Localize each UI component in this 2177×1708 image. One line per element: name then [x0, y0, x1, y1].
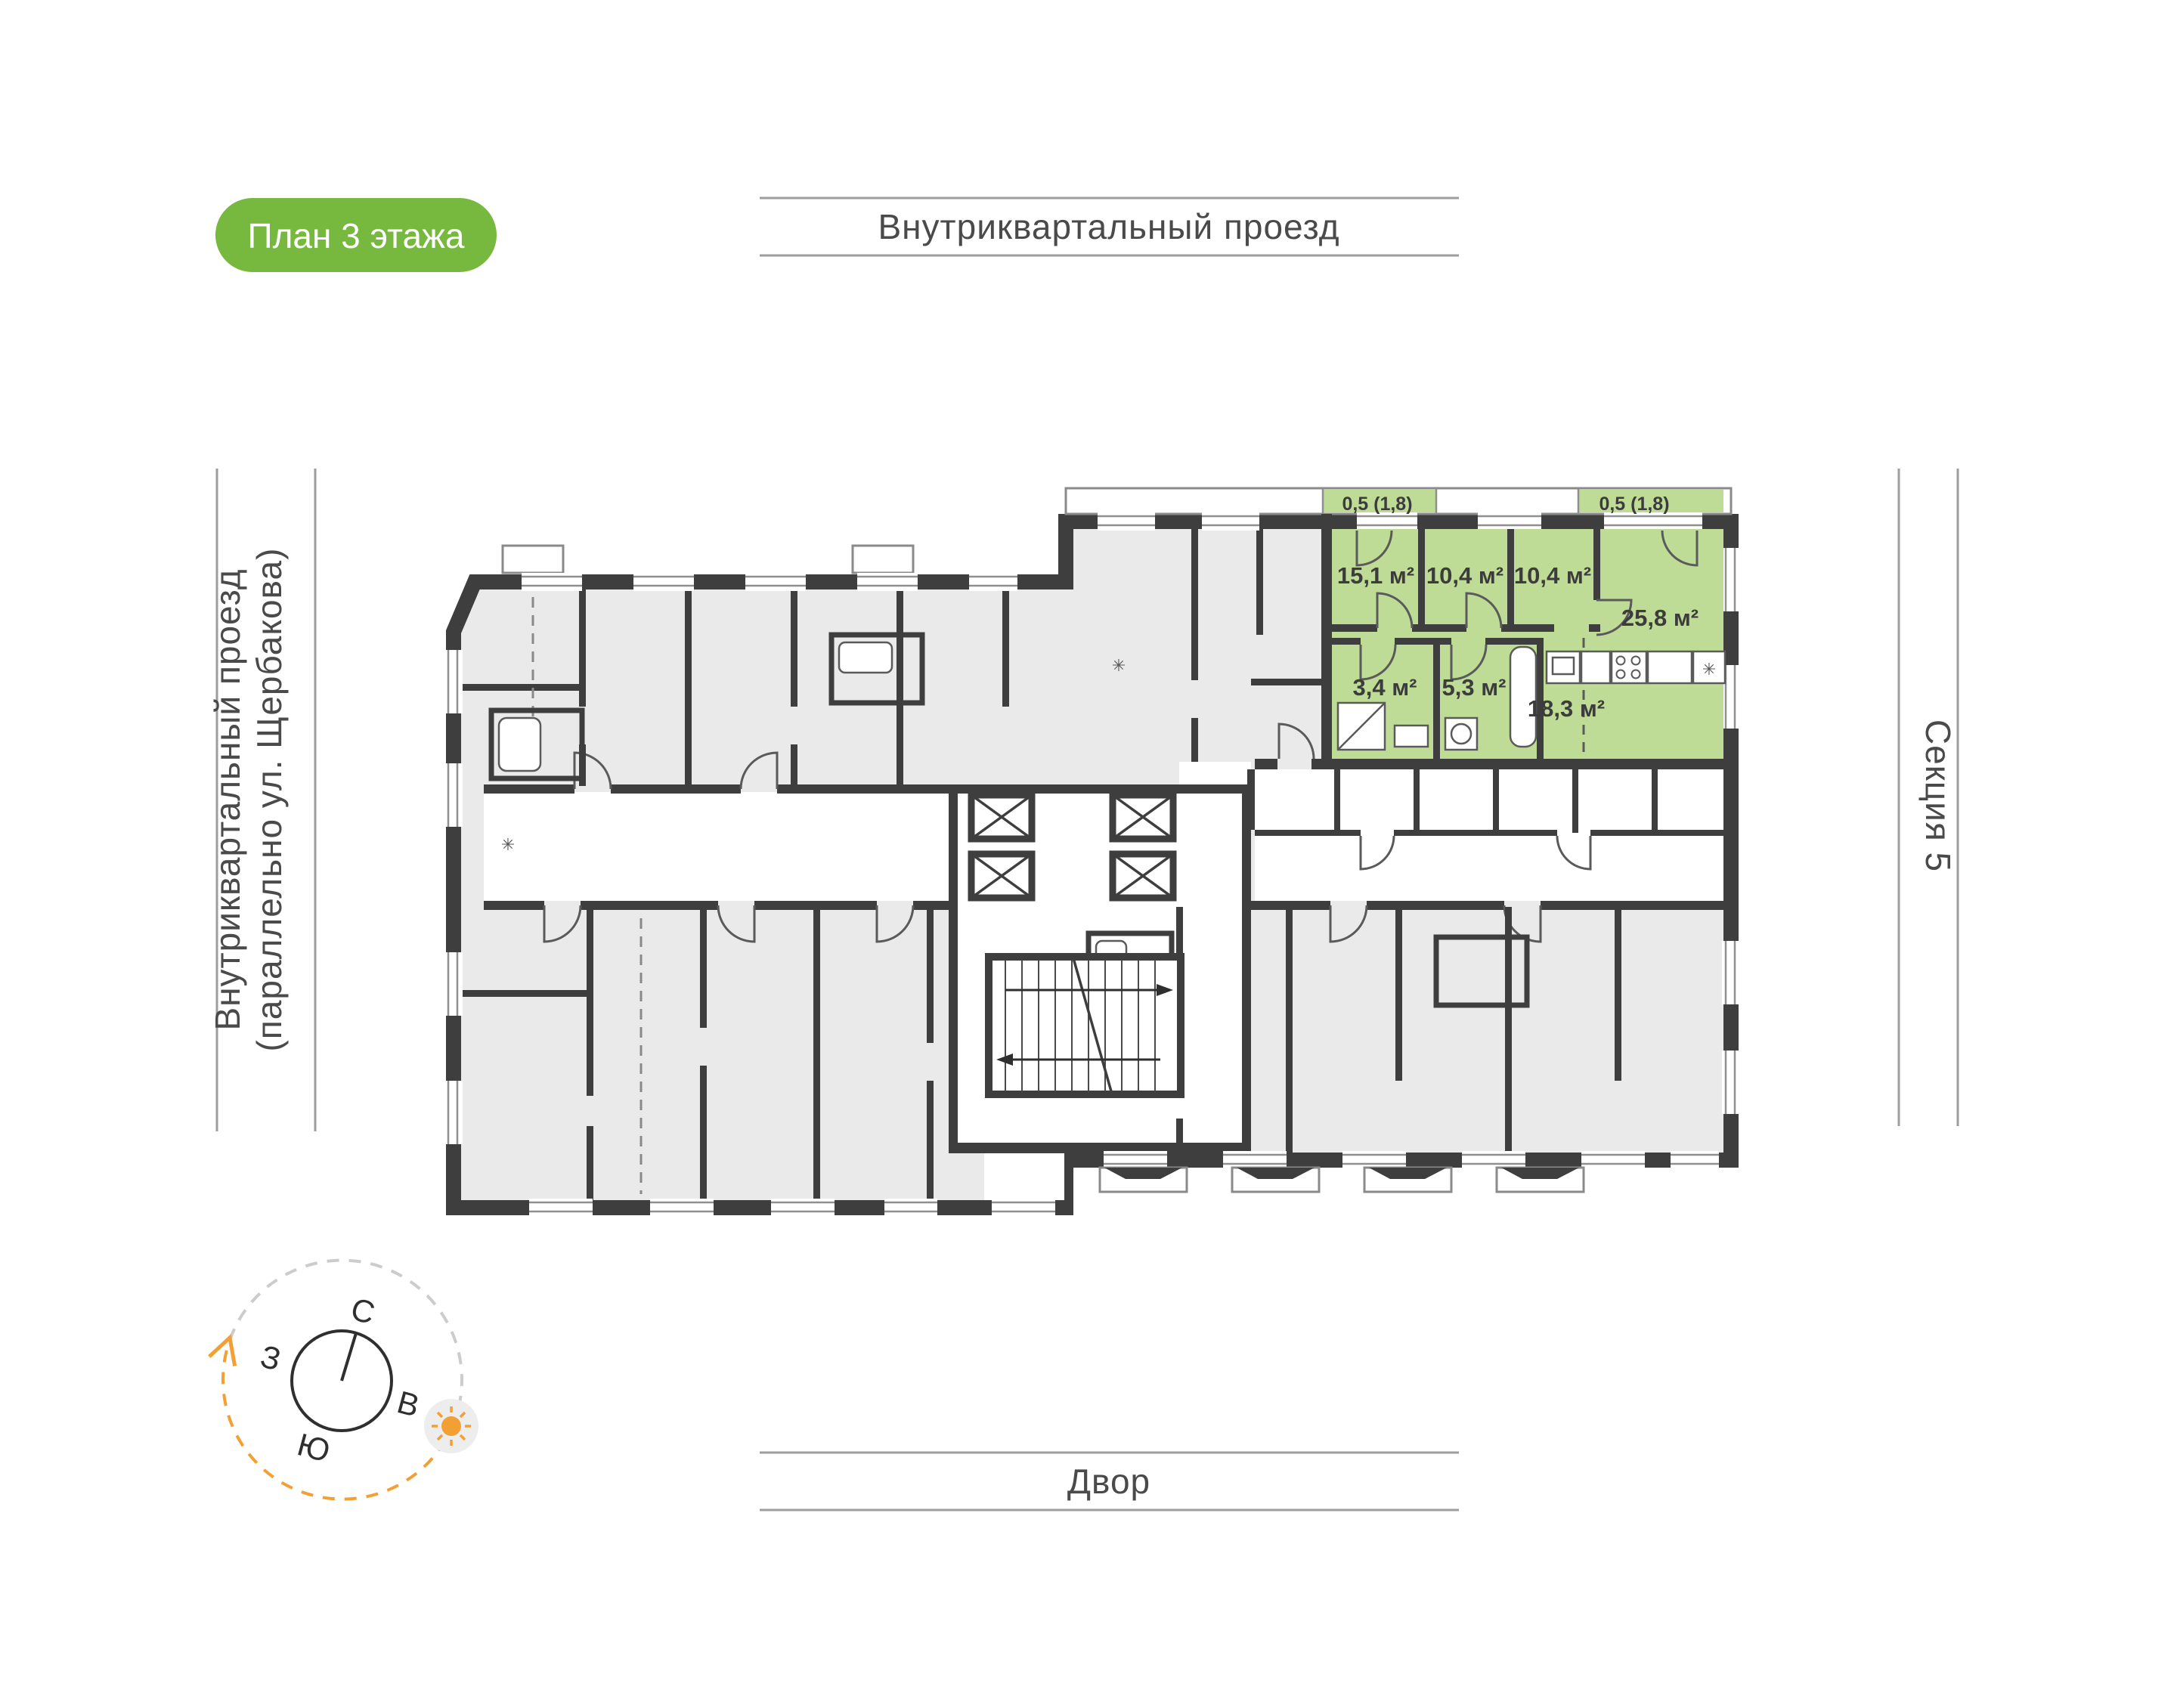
fridge-glyph-highlight: ✳: [1702, 660, 1716, 679]
compass-north-label: С: [347, 1291, 378, 1331]
top-street-text: Внутриквартальный проезд: [878, 207, 1339, 246]
compass: С В Ю З: [209, 1261, 478, 1499]
floor-plan-page: План 3 этажа Внутриквартальный проезд Вн…: [0, 0, 2177, 1708]
room-area-label-living: 25,8 м²: [1621, 605, 1699, 631]
compass-south-label: Ю: [294, 1426, 334, 1468]
floor-badge-label: План 3 этажа: [248, 216, 465, 255]
elevator-shaft-1: [971, 795, 1032, 839]
section-text: Секция 5: [1918, 719, 1958, 872]
top-street-label: Внутриквартальный проезд: [760, 198, 1459, 255]
balcony-label-1: 0,5 (1,8): [1342, 494, 1412, 515]
sun-path-arrow: [209, 1338, 235, 1366]
apartment-highlight[interactable]: ✳ 15,1 м² 10,4 м² 10,4 м² 25,8 м² 3,4 м²…: [1255, 494, 1725, 769]
floor-badge: План 3 этажа: [215, 198, 497, 272]
corridor-left: [484, 792, 949, 901]
room-area-label-bedroom-1: 15,1 м²: [1337, 562, 1414, 589]
yard-label: Двор: [760, 1453, 1459, 1510]
fridge-glyph-2: ✳: [1112, 656, 1126, 675]
building: ✳ ✳: [444, 488, 1740, 1217]
compass-east-label: В: [394, 1384, 423, 1424]
elevator-shaft-2: [971, 854, 1032, 898]
fridge-glyph-1: ✳: [501, 835, 515, 854]
room-area-label-bathroom-2: 5,3 м²: [1442, 674, 1507, 701]
room-area-label-hallway: 18,3 м²: [1528, 695, 1605, 722]
elevator-shaft-3: [1113, 795, 1173, 839]
room-area-label-bedroom-2: 10,4 м²: [1426, 562, 1503, 589]
elevator-shaft-4: [1113, 854, 1173, 898]
section-label: Секция 5: [1899, 469, 1958, 1126]
top-balconies: [503, 546, 913, 573]
balcony-label-2: 0,5 (1,8): [1599, 494, 1669, 515]
staircase: [989, 957, 1181, 1094]
left-street-text-line2: (параллельно ул. Щербакова): [249, 548, 289, 1052]
bottom-balconies: [1100, 1168, 1584, 1192]
floor-plan-svg: План 3 этажа Внутриквартальный проезд Вн…: [0, 0, 2177, 1708]
room-area-label-bedroom-3: 10,4 м²: [1514, 562, 1591, 589]
left-street-text-line1: Внутриквартальный проезд: [208, 568, 247, 1030]
kitchen-counter: ✳: [1547, 651, 1725, 683]
left-street-label: Внутриквартальный проезд (параллельно ул…: [208, 469, 315, 1131]
yard-text: Двор: [1067, 1462, 1150, 1501]
room-area-label-bathroom-1: 3,4 м²: [1353, 674, 1417, 701]
compass-west-label: З: [257, 1338, 285, 1378]
